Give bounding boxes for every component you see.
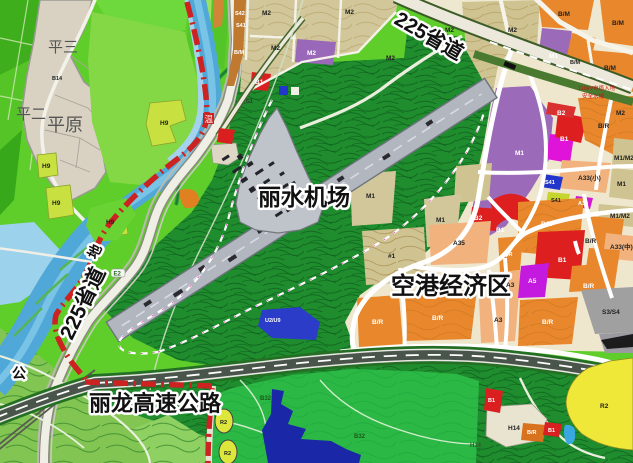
svg-text:A33(小): A33(小) <box>578 173 601 182</box>
svg-text:平三: 平三 <box>48 39 78 56</box>
svg-text:B/M: B/M <box>612 20 624 27</box>
svg-text:B2: B2 <box>557 110 566 117</box>
svg-text:E2: E2 <box>114 272 122 278</box>
svg-text:S3/S4: S3/S4 <box>602 309 620 316</box>
svg-text:B1: B1 <box>496 227 505 234</box>
svg-text:S42: S42 <box>235 11 245 17</box>
svg-text:B32: B32 <box>260 396 272 402</box>
svg-text:B1: B1 <box>488 398 495 404</box>
svg-text:丽水机场: 丽水机场 <box>258 184 350 210</box>
svg-text:B/M: B/M <box>558 11 570 18</box>
svg-text:M2: M2 <box>616 110 625 117</box>
svg-text:B/M: B/M <box>570 60 581 66</box>
svg-text:M2: M2 <box>508 27 517 34</box>
svg-text:安全水域: 安全水域 <box>582 92 605 100</box>
svg-text:M1: M1 <box>617 181 626 188</box>
svg-text:H9: H9 <box>42 163 51 170</box>
svg-text:B32: B32 <box>354 434 366 440</box>
svg-text:A5: A5 <box>528 278 537 285</box>
svg-text:H14: H14 <box>508 425 520 432</box>
svg-text:H14: H14 <box>470 443 482 449</box>
svg-text:M1: M1 <box>549 53 558 60</box>
svg-text:M2: M2 <box>307 50 316 57</box>
svg-text:平二: 平二 <box>16 106 46 123</box>
svg-text:B/R: B/R <box>583 283 595 290</box>
svg-text:S41: S41 <box>545 180 555 186</box>
svg-text:A3: A3 <box>494 317 503 324</box>
svg-text:温: 温 <box>205 114 214 124</box>
svg-text:M1: M1 <box>436 217 445 224</box>
svg-text:B1: B1 <box>560 136 569 143</box>
svg-text:H9: H9 <box>160 120 169 127</box>
svg-text:M2: M2 <box>271 45 280 52</box>
svg-text:M2: M2 <box>445 27 454 34</box>
svg-text:H9: H9 <box>52 200 61 207</box>
svg-text:B/R: B/R <box>541 221 553 228</box>
svg-text:110kV电缆入地: 110kV电缆入地 <box>578 84 616 92</box>
svg-text:B/M: B/M <box>234 50 245 56</box>
svg-text:公: 公 <box>12 365 26 381</box>
svg-text:M1: M1 <box>366 193 375 200</box>
svg-text:A35: A35 <box>453 240 465 247</box>
svg-text:B14: B14 <box>52 76 63 82</box>
svg-text:空港经济区: 空港经济区 <box>391 272 511 300</box>
svg-text:B/R: B/R <box>432 315 444 322</box>
svg-text:B/R: B/R <box>527 430 537 436</box>
svg-text:H9: H9 <box>106 219 115 226</box>
svg-text:平原: 平原 <box>47 115 83 135</box>
svg-text:M1/M2: M1/M2 <box>610 213 630 220</box>
svg-text:U2/U9: U2/U9 <box>265 318 281 324</box>
svg-text:R2: R2 <box>600 403 609 410</box>
svg-text:R2: R2 <box>220 420 227 426</box>
svg-text:B1: B1 <box>548 428 555 434</box>
svg-text:G1: G1 <box>246 99 253 105</box>
svg-text:B1: B1 <box>255 79 264 86</box>
svg-text:M2: M2 <box>345 9 354 16</box>
svg-text:B/R: B/R <box>503 252 513 258</box>
svg-text:丽龙高速公路: 丽龙高速公路 <box>89 391 222 416</box>
svg-text:M1: M1 <box>515 150 524 157</box>
svg-text:B/R: B/R <box>585 238 597 245</box>
svg-text:A33: A33 <box>578 201 588 207</box>
svg-text:B/R: B/R <box>372 319 384 326</box>
svg-text:S41: S41 <box>236 23 246 29</box>
svg-text:B1: B1 <box>558 257 567 264</box>
svg-text:A33(中): A33(中) <box>610 242 633 251</box>
svg-text:R2: R2 <box>224 451 231 457</box>
svg-text:#1: #1 <box>388 253 396 260</box>
svg-text:M2: M2 <box>386 55 395 62</box>
svg-text:B/M: B/M <box>604 65 616 72</box>
svg-text:S41: S41 <box>551 198 561 204</box>
svg-text:M2: M2 <box>262 10 271 17</box>
svg-text:B/R: B/R <box>542 319 554 326</box>
svg-text:M1/M2: M1/M2 <box>614 155 633 162</box>
svg-text:B2: B2 <box>474 215 483 222</box>
svg-text:A3: A3 <box>506 282 515 289</box>
svg-text:B/R: B/R <box>598 123 610 130</box>
